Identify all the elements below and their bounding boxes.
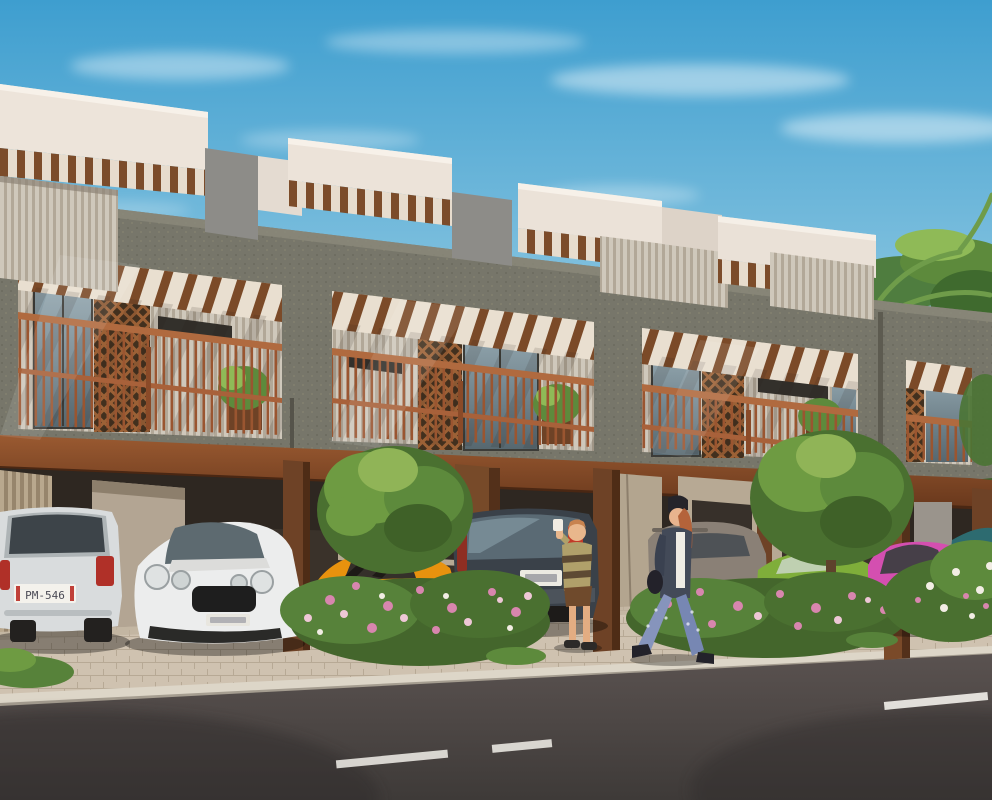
woman-bag xyxy=(647,570,663,594)
boy-shoe xyxy=(581,642,597,650)
woman-shoe xyxy=(696,652,714,664)
boy-shoe xyxy=(564,640,580,648)
concrete-wall xyxy=(205,148,258,240)
wheel xyxy=(10,620,36,642)
headlight xyxy=(145,565,169,589)
wheel xyxy=(84,618,112,642)
townhouse-rendering: PM-546 xyxy=(0,0,992,800)
boy-shirt xyxy=(562,542,592,591)
taillight xyxy=(96,556,114,586)
taillight xyxy=(0,560,10,590)
white-suv: PM-546 xyxy=(0,507,130,654)
balcony-unit-4 xyxy=(906,360,992,466)
boy-leg xyxy=(569,606,576,640)
license-plate-text: PM-546 xyxy=(25,589,65,602)
shrub-left xyxy=(317,446,473,574)
boy-leg xyxy=(583,606,590,642)
woman-top xyxy=(676,532,685,588)
utility-box xyxy=(914,502,952,546)
headlight xyxy=(172,571,190,589)
grille xyxy=(192,586,256,612)
boy-shorts xyxy=(564,586,592,607)
concrete-wall xyxy=(452,192,512,266)
rear-window xyxy=(9,515,105,555)
held-item xyxy=(553,519,563,531)
